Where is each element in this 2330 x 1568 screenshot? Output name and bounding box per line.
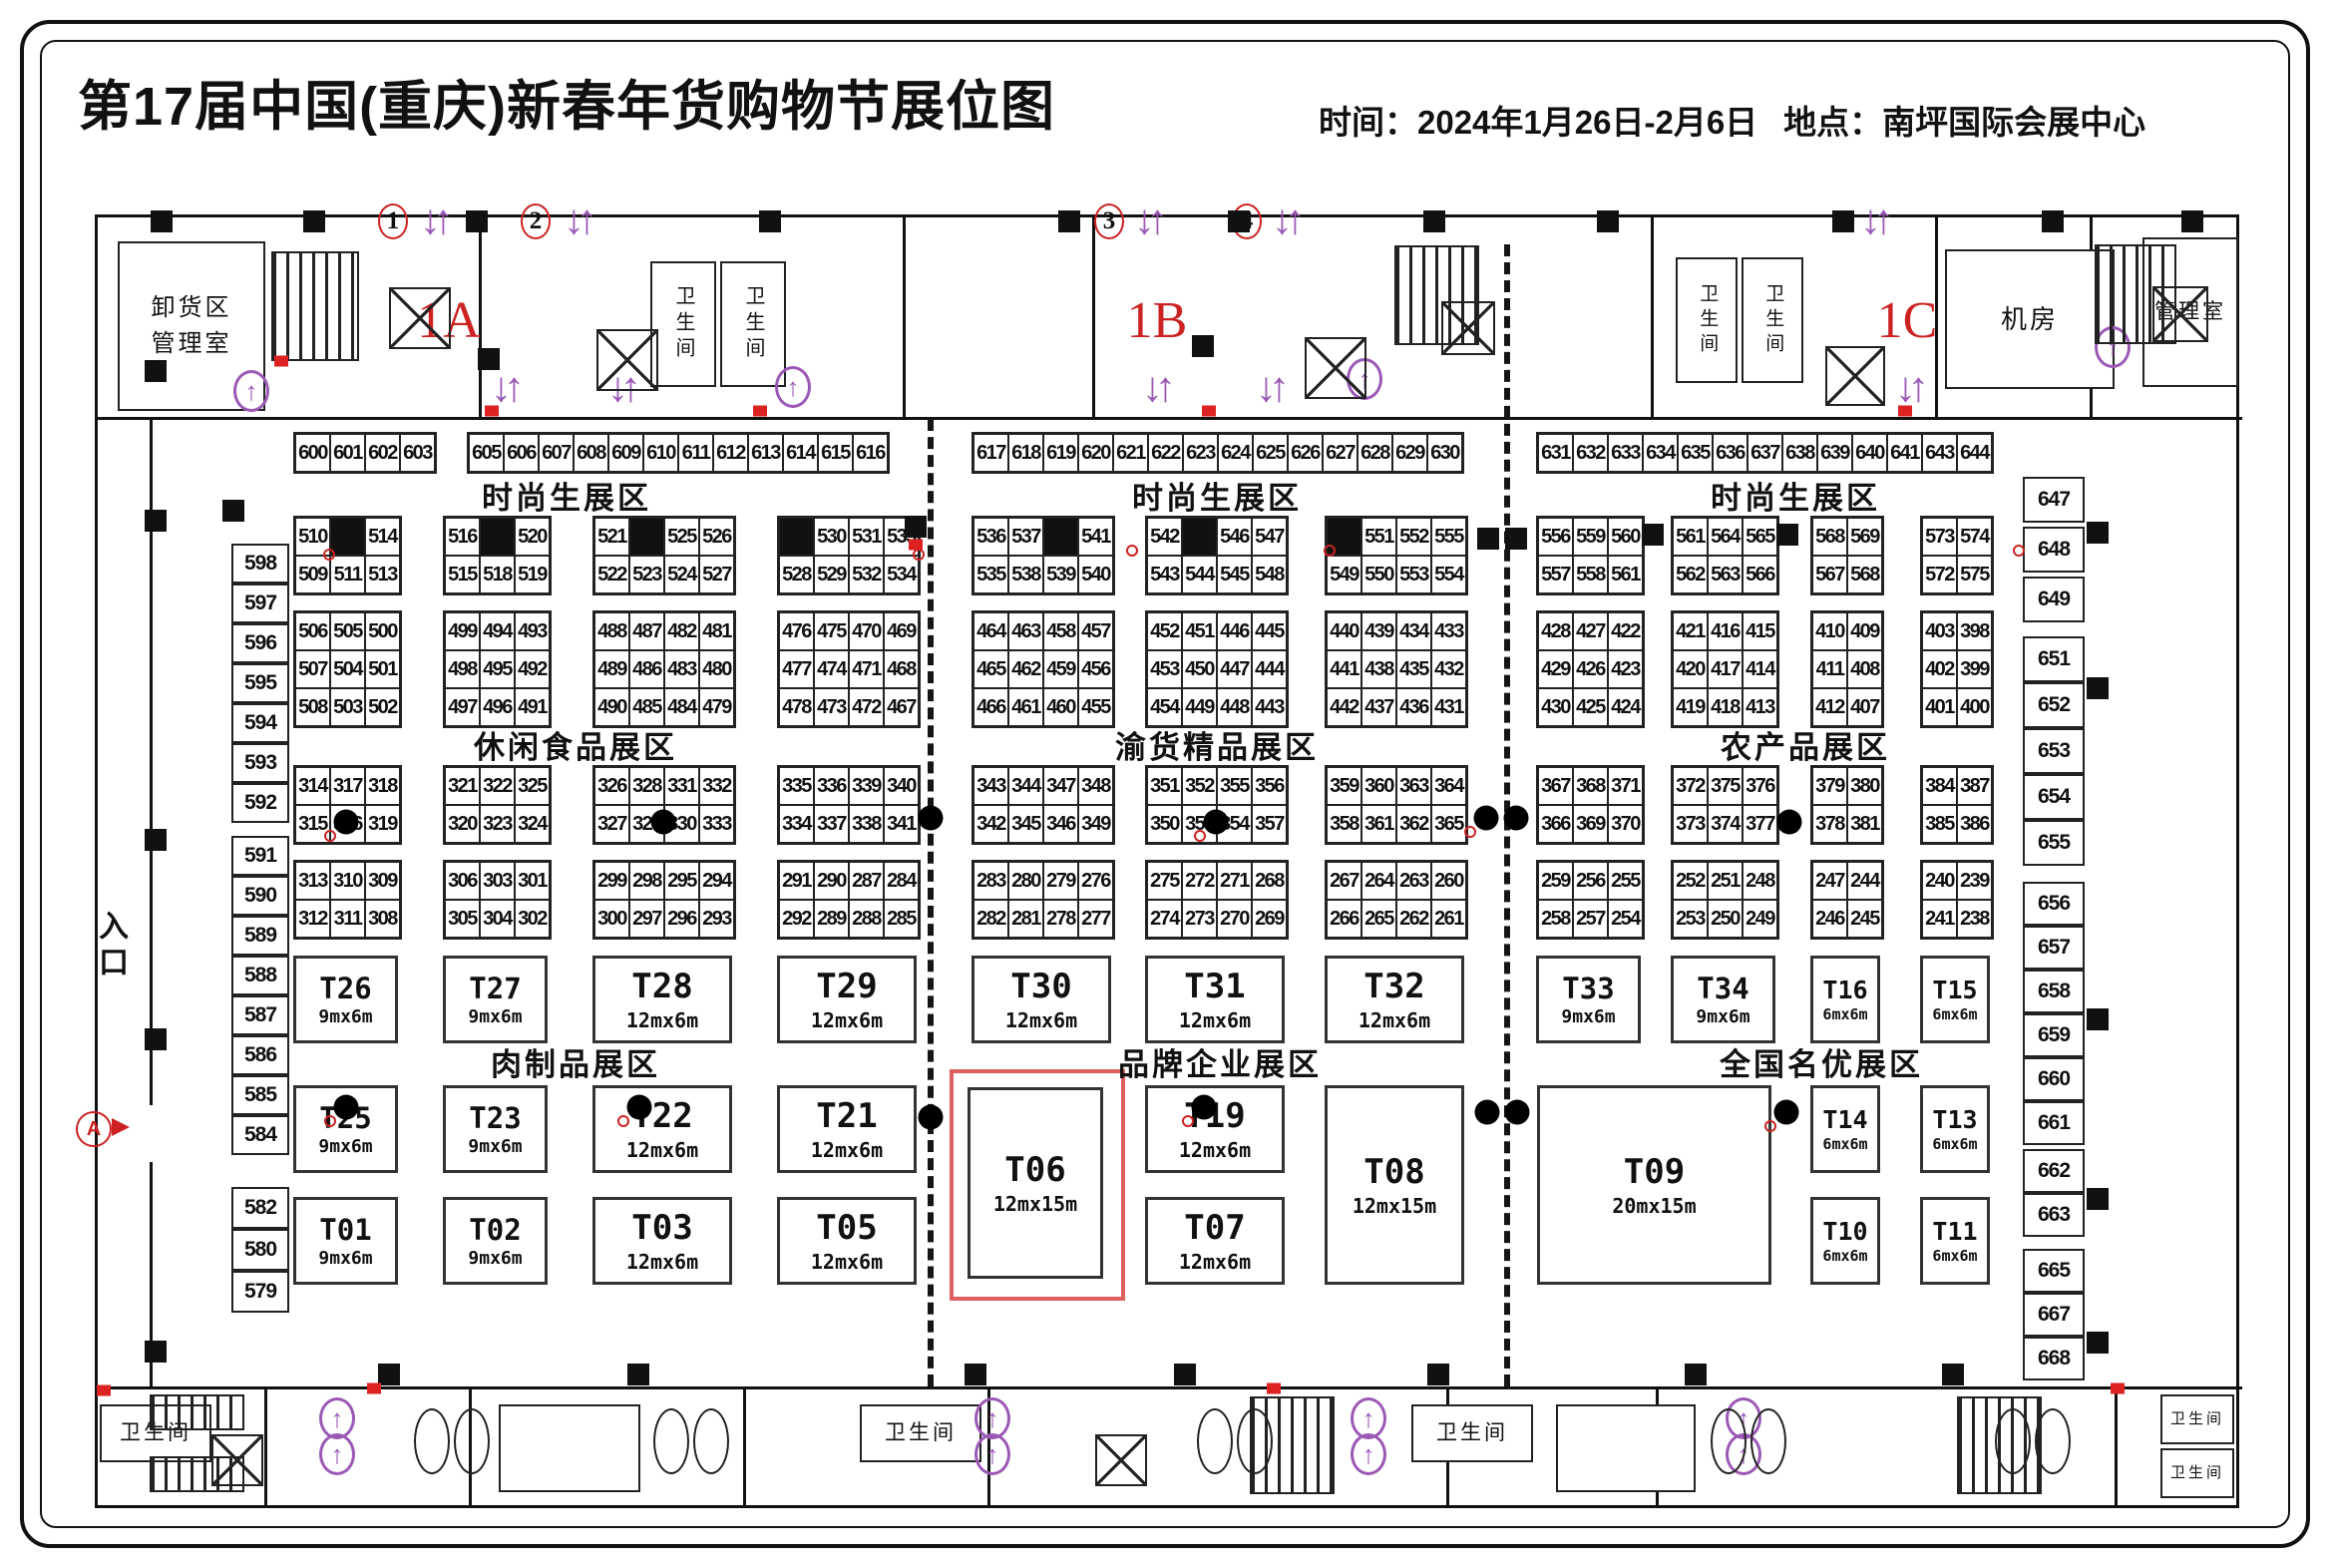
booth-cell: 361 xyxy=(1361,805,1396,843)
booth-cell: 274 xyxy=(1147,900,1182,938)
booth-cell: 449 xyxy=(1182,688,1217,726)
booth-cell: 364 xyxy=(1431,767,1466,805)
booth-cell: 366 xyxy=(1538,805,1573,843)
booth-group: 605606607608609610611612613614615616 xyxy=(467,432,890,474)
booth-cell: 261 xyxy=(1431,900,1466,938)
booth-cell: 621 xyxy=(1113,434,1148,472)
booth-cell: 333 xyxy=(699,805,734,843)
booth-cell: 547 xyxy=(1252,518,1287,556)
fire-equipment-icon xyxy=(1202,406,1216,417)
t-booth-text: T05 xyxy=(816,1207,877,1250)
booth-cell: 421 xyxy=(1673,612,1708,650)
booth-cell: 417 xyxy=(1708,650,1743,688)
booth-cell: 400 xyxy=(1957,688,1992,726)
pillar xyxy=(145,1028,167,1050)
booth-cell: 466 xyxy=(973,688,1008,726)
pillar xyxy=(145,1341,167,1363)
t-booth-T11: T116mx6m xyxy=(1920,1197,1990,1285)
t-booth-text: T13 xyxy=(1932,1104,1977,1135)
side-booth: 656 xyxy=(2023,882,2085,926)
booth-cell: 552 xyxy=(1396,518,1431,556)
booth-cell: 374 xyxy=(1708,805,1743,843)
booth-cell: 422 xyxy=(1608,612,1643,650)
booth-cell: 462 xyxy=(1008,650,1043,688)
elevator-icon xyxy=(389,287,451,349)
booth-cell: 493 xyxy=(515,612,550,650)
fire-equipment-icon xyxy=(1898,406,1912,417)
pillar xyxy=(145,360,167,382)
side-booth: 648 xyxy=(2023,527,2085,573)
side-booth: 658 xyxy=(2023,970,2085,1013)
booth-group: 306303301305304302 xyxy=(443,860,552,940)
booth-cell: 318 xyxy=(365,767,400,805)
t-booth-text: 12mx6m xyxy=(1179,1138,1251,1163)
booth-cell: 262 xyxy=(1396,900,1431,938)
fire-equipment-icon xyxy=(367,1383,381,1394)
t-booth-text: 12mx6m xyxy=(626,1008,698,1033)
booth-cell: 432 xyxy=(1431,650,1466,688)
booth-cell: 609 xyxy=(608,434,643,472)
booth-group: 403398402399401400 xyxy=(1920,610,1994,728)
booth-cell: 540 xyxy=(1078,556,1113,593)
booth-cell: 446 xyxy=(1217,612,1252,650)
booth-cell: 618 xyxy=(1008,434,1043,472)
booth-group: 631632633634635636637638639640641643644 xyxy=(1536,432,1994,474)
booth-cell: 342 xyxy=(973,805,1008,843)
booth-cell: 273 xyxy=(1182,900,1217,938)
booth-cell: 409 xyxy=(1847,612,1882,650)
booth-cell: 456 xyxy=(1078,650,1113,688)
booth-group: 259256255258257254 xyxy=(1536,860,1645,940)
t-booth-text: T31 xyxy=(1184,966,1245,1008)
t-booth-text: T21 xyxy=(816,1095,877,1138)
booth-cell: 325 xyxy=(515,767,550,805)
booth-cell: 625 xyxy=(1253,434,1288,472)
booth-cell: 372 xyxy=(1673,767,1708,805)
stairs-icon xyxy=(2095,244,2176,344)
side-booth: 591 xyxy=(231,836,289,876)
zone-label: 渝货精品展区 xyxy=(1115,722,1319,767)
booth-cell: 419 xyxy=(1673,688,1708,726)
booth-cell: 505 xyxy=(330,612,365,650)
side-booth: 668 xyxy=(2023,1337,2085,1380)
booth-cell: 522 xyxy=(594,556,629,593)
pillar xyxy=(151,210,173,232)
booth-cell: 440 xyxy=(1327,612,1361,650)
booth-cell: 619 xyxy=(1043,434,1078,472)
booth-group: 542546547543544545548 xyxy=(1145,516,1289,595)
booth-cell: 265 xyxy=(1361,900,1396,938)
t-booth-T34: T349mx6m xyxy=(1671,956,1775,1043)
pillar xyxy=(627,1364,649,1385)
booth-cell: 615 xyxy=(818,434,853,472)
t-booth-T30: T3012mx6m xyxy=(971,956,1111,1043)
up-arrow-icon: ↑ xyxy=(1351,1433,1386,1475)
booth-group: 530531533528529532534 xyxy=(777,516,921,595)
booth-cell: 398 xyxy=(1957,612,1992,650)
t-booth-T05: T0512mx6m xyxy=(777,1197,917,1285)
booth-cell: 344 xyxy=(1008,767,1043,805)
booth-cell: 248 xyxy=(1743,862,1777,900)
pillar xyxy=(303,210,325,232)
booth-cell: 332 xyxy=(699,767,734,805)
booth-cell: 314 xyxy=(295,767,330,805)
t-booth-text: 12mx6m xyxy=(811,1250,883,1275)
booth-cell: 348 xyxy=(1078,767,1113,805)
booth-cell: 298 xyxy=(629,862,664,900)
booth-cell: 569 xyxy=(1847,518,1882,556)
booth-group: 291290287284292289288285 xyxy=(777,860,921,940)
booth-cell: 612 xyxy=(713,434,748,472)
booth-cell: 380 xyxy=(1847,767,1882,805)
booth-group: 464463458457465462459456466461460455 xyxy=(971,610,1115,728)
booth-cell: 524 xyxy=(664,556,699,593)
pillar-cell xyxy=(1182,518,1217,556)
booth-cell: 482 xyxy=(664,612,699,650)
booth-cell: 426 xyxy=(1573,650,1608,688)
room-label: 机房 xyxy=(1945,249,2115,389)
booth-cell: 423 xyxy=(1608,650,1643,688)
booth-cell: 365 xyxy=(1431,805,1466,843)
wall xyxy=(903,214,906,419)
t-booth-T29: T2912mx6m xyxy=(777,956,917,1043)
t-booth-text: 6mx6m xyxy=(1822,1135,1867,1154)
booth-cell: 433 xyxy=(1431,612,1466,650)
booth-cell: 272 xyxy=(1182,862,1217,900)
booth-group: 536537541535538539540 xyxy=(971,516,1115,595)
booth-cell: 508 xyxy=(295,688,330,726)
booth-cell: 403 xyxy=(1922,612,1957,650)
side-booth: 580 xyxy=(231,1229,289,1271)
stairs-icon xyxy=(150,1394,244,1430)
gate-arrows-icon: ↓↑ xyxy=(1134,196,1160,243)
t-booth-text: 12mx6m xyxy=(1179,1008,1251,1033)
booth-cell: 418 xyxy=(1708,688,1743,726)
gate-arrows-icon: ↓↑ xyxy=(564,196,589,243)
booth-cell: 640 xyxy=(1852,434,1887,472)
booth-cell: 407 xyxy=(1847,688,1882,726)
booth-cell: 347 xyxy=(1043,767,1078,805)
booth-cell: 304 xyxy=(480,900,515,938)
up-arrow-icon: ↑ xyxy=(233,370,269,412)
booth-cell: 608 xyxy=(574,434,608,472)
booth-cell: 324 xyxy=(515,805,550,843)
t-booth-T13: T136mx6m xyxy=(1920,1085,1990,1173)
booth-cell: 428 xyxy=(1538,612,1573,650)
booth-cell: 317 xyxy=(330,767,365,805)
booth-cell: 331 xyxy=(664,767,699,805)
t-booth-text: T15 xyxy=(1932,975,1977,1005)
booth-cell: 349 xyxy=(1078,805,1113,843)
zone-label: 农产品展区 xyxy=(1721,722,1890,767)
booth-cell: 291 xyxy=(779,862,814,900)
t-booth-T06: T0612mx15m xyxy=(968,1087,1103,1279)
booth-cell: 469 xyxy=(884,612,919,650)
gate-number-icon: 2 xyxy=(521,203,551,239)
booth-cell: 279 xyxy=(1043,862,1078,900)
booth-cell: 548 xyxy=(1252,556,1287,593)
booth-cell: 424 xyxy=(1608,688,1643,726)
booth-group: 551552555549550553554 xyxy=(1325,516,1468,595)
booth-cell: 384 xyxy=(1922,767,1957,805)
booth-cell: 363 xyxy=(1396,767,1431,805)
booth-cell: 525 xyxy=(664,518,699,556)
booth-cell: 644 xyxy=(1957,434,1992,472)
zone-label: 肉制品展区 xyxy=(491,1039,660,1084)
booth-cell: 411 xyxy=(1812,650,1847,688)
booth-cell: 375 xyxy=(1708,767,1743,805)
t-booth-text: 9mx6m xyxy=(318,1006,372,1029)
booth-cell: 297 xyxy=(629,900,664,938)
stairs-icon xyxy=(271,251,359,361)
column-dot xyxy=(651,810,676,835)
t-booth-T27: T279mx6m xyxy=(443,956,548,1043)
booth-cell: 536 xyxy=(973,518,1008,556)
t-booth-text: 9mx6m xyxy=(1561,1006,1615,1029)
t-booth-text: T01 xyxy=(319,1212,371,1248)
t-booth-text: 20mx15m xyxy=(1612,1194,1696,1219)
booth-cell: 495 xyxy=(480,650,515,688)
column-dot xyxy=(1192,1095,1217,1120)
booth-cell: 542 xyxy=(1147,518,1182,556)
booth-cell: 603 xyxy=(400,434,435,472)
zone-label: 时尚生展区 xyxy=(1132,473,1302,518)
booth-cell: 530 xyxy=(814,518,849,556)
column-dot xyxy=(1774,1100,1799,1125)
booth-cell: 560 xyxy=(1608,518,1643,556)
wall xyxy=(1092,214,1095,419)
booth-cell: 634 xyxy=(1643,434,1678,472)
column-dot xyxy=(1777,810,1802,835)
booth-cell: 543 xyxy=(1147,556,1182,593)
t-booth-text: T08 xyxy=(1363,1151,1424,1194)
booth-cell: 628 xyxy=(1358,434,1392,472)
hydrant-ring-icon xyxy=(1126,545,1138,557)
stairs-icon xyxy=(1394,245,1479,345)
booth-cell: 546 xyxy=(1217,518,1252,556)
booth-cell: 607 xyxy=(539,434,574,472)
booth-cell: 429 xyxy=(1538,650,1573,688)
t-booth-T21: T2112mx6m xyxy=(777,1085,917,1173)
booth-cell: 308 xyxy=(365,900,400,938)
booth-cell: 490 xyxy=(594,688,629,726)
t-booth-text: 12mx6m xyxy=(811,1138,883,1163)
t-booth-text: T29 xyxy=(816,966,877,1008)
booth-group: 556559560557558561 xyxy=(1536,516,1645,595)
gate-arrows-icon: ↓↑ xyxy=(1256,363,1282,411)
pillar xyxy=(1477,528,1499,550)
side-booth: 588 xyxy=(231,956,289,995)
t-booth-text: T34 xyxy=(1697,971,1748,1006)
booth-cell: 549 xyxy=(1327,556,1361,593)
t-booth-T02: T029mx6m xyxy=(443,1197,548,1285)
booth-cell: 504 xyxy=(330,650,365,688)
booth-cell: 606 xyxy=(504,434,539,472)
pillar xyxy=(1427,1364,1449,1385)
door-icon xyxy=(1556,1404,1696,1492)
booth-cell: 340 xyxy=(884,767,919,805)
hall-divider-dashed xyxy=(928,419,934,1386)
booth-cell: 442 xyxy=(1327,688,1361,726)
booth-cell: 309 xyxy=(365,862,400,900)
booth-cell: 326 xyxy=(594,767,629,805)
booth-cell: 437 xyxy=(1361,688,1396,726)
booth-cell: 561 xyxy=(1608,556,1643,593)
pillar-cell xyxy=(629,518,664,556)
booth-cell: 293 xyxy=(699,900,734,938)
booth-group: 359360363364358361362365 xyxy=(1325,765,1468,845)
hydrant-ring-icon xyxy=(1764,1120,1776,1132)
booth-cell: 294 xyxy=(699,862,734,900)
booth-cell: 503 xyxy=(330,688,365,726)
wall xyxy=(2115,1388,2118,1508)
booth-cell: 477 xyxy=(779,650,814,688)
pillar xyxy=(378,1364,400,1385)
t-booth-text: T09 xyxy=(1624,1151,1685,1194)
booth-cell: 322 xyxy=(480,767,515,805)
side-booth: 587 xyxy=(231,995,289,1035)
booth-cell: 513 xyxy=(365,556,400,593)
booth-cell: 534 xyxy=(884,556,919,593)
booth-cell: 337 xyxy=(814,805,849,843)
booth-cell: 556 xyxy=(1538,518,1573,556)
booth-group: 488487482481489486483480490485484479 xyxy=(592,610,736,728)
hydrant-ring-icon xyxy=(1464,826,1476,838)
booth-group: 573574572575 xyxy=(1920,516,1994,595)
side-booth: 593 xyxy=(231,743,289,783)
booth-cell: 558 xyxy=(1573,556,1608,593)
pillar xyxy=(905,516,927,538)
booth-cell: 610 xyxy=(643,434,678,472)
room-label: 卫生间 xyxy=(650,261,716,387)
revolving-door-icon xyxy=(1197,1408,1277,1474)
booth-cell: 285 xyxy=(884,900,919,938)
elevator-icon xyxy=(1825,346,1885,406)
booth-cell: 574 xyxy=(1957,518,1992,556)
booth-cell: 498 xyxy=(445,650,480,688)
booth-cell: 328 xyxy=(629,767,664,805)
booth-group: 283280279276282281278277 xyxy=(971,860,1115,940)
t-booth-text: T02 xyxy=(469,1212,521,1248)
booth-group: 410409411408412407 xyxy=(1810,610,1884,728)
t-booth-text: 12mx15m xyxy=(993,1192,1077,1217)
booth-cell: 282 xyxy=(973,900,1008,938)
booth-cell: 436 xyxy=(1396,688,1431,726)
booth-cell: 345 xyxy=(1008,805,1043,843)
booth-cell: 431 xyxy=(1431,688,1466,726)
booth-cell: 410 xyxy=(1812,612,1847,650)
t-booth-text: 12mx6m xyxy=(811,1008,883,1033)
elevator-icon xyxy=(1095,1434,1147,1486)
pillar xyxy=(1505,528,1527,550)
column-dot xyxy=(1474,806,1499,831)
booth-cell: 245 xyxy=(1847,900,1882,938)
zone-label: 全国名优展区 xyxy=(1720,1039,1923,1084)
booth-group: 299298295294300297296293 xyxy=(592,860,736,940)
pillar xyxy=(965,1364,986,1385)
booth-cell: 252 xyxy=(1673,862,1708,900)
t-booth-text: 9mx6m xyxy=(318,1248,372,1271)
booth-cell: 514 xyxy=(365,518,400,556)
booth-cell: 502 xyxy=(365,688,400,726)
booth-cell: 484 xyxy=(664,688,699,726)
t-booth-text: 6mx6m xyxy=(1822,1247,1867,1266)
booth-cell: 481 xyxy=(699,612,734,650)
booth-cell: 355 xyxy=(1217,767,1252,805)
hydrant-ring-icon xyxy=(323,549,335,561)
booth-cell: 378 xyxy=(1812,805,1847,843)
booth-cell: 537 xyxy=(1008,518,1043,556)
booth-cell: 602 xyxy=(365,434,400,472)
t-booth-text: 12mx6m xyxy=(626,1138,698,1163)
gate-arrows-icon: ↓↑ xyxy=(1860,196,1886,243)
booth-group: 428427422429426423430425424 xyxy=(1536,610,1645,728)
booth-group: 521525526522523524527 xyxy=(592,516,736,595)
booth-cell: 554 xyxy=(1431,556,1466,593)
booth-group: 510514509511513 xyxy=(293,516,402,595)
pillar xyxy=(1776,524,1798,546)
booth-cell: 443 xyxy=(1252,688,1287,726)
column-dot xyxy=(334,810,359,835)
booth-cell: 629 xyxy=(1392,434,1427,472)
booth-cell: 244 xyxy=(1847,862,1882,900)
booth-cell: 453 xyxy=(1147,650,1182,688)
booth-cell: 425 xyxy=(1573,688,1608,726)
booth-cell: 379 xyxy=(1812,767,1847,805)
booth-cell: 641 xyxy=(1887,434,1922,472)
booth-cell: 562 xyxy=(1673,556,1708,593)
booth-cell: 373 xyxy=(1673,805,1708,843)
booth-cell: 280 xyxy=(1008,862,1043,900)
wall xyxy=(1651,214,1654,419)
booth-group: 6176186196206216226236246256266276286296… xyxy=(971,432,1464,474)
fire-equipment-icon xyxy=(274,356,288,367)
booth-group: 252251248253250249 xyxy=(1671,860,1779,940)
pillar xyxy=(2087,1332,2109,1354)
booth-cell: 473 xyxy=(814,688,849,726)
booth-group: 372375376373374377 xyxy=(1671,765,1779,845)
booth-cell: 573 xyxy=(1922,518,1957,556)
booth-cell: 241 xyxy=(1922,900,1957,938)
booth-cell: 515 xyxy=(445,556,480,593)
booth-cell: 479 xyxy=(699,688,734,726)
t-booth-T16: T166mx6m xyxy=(1810,956,1880,1043)
booth-cell: 275 xyxy=(1147,862,1182,900)
booth-cell: 435 xyxy=(1396,650,1431,688)
booth-cell: 455 xyxy=(1078,688,1113,726)
booth-group: 275272271268274273270269 xyxy=(1145,860,1289,940)
t-booth-T10: T106mx6m xyxy=(1810,1197,1880,1285)
booth-cell: 402 xyxy=(1922,650,1957,688)
booth-cell: 639 xyxy=(1817,434,1852,472)
booth-cell: 631 xyxy=(1538,434,1573,472)
fire-equipment-icon xyxy=(1267,1383,1281,1394)
marker-a-icon: A xyxy=(76,1111,112,1147)
booth-cell: 460 xyxy=(1043,688,1078,726)
booth-cell: 605 xyxy=(469,434,504,472)
booth-cell: 565 xyxy=(1743,518,1777,556)
booth-cell: 527 xyxy=(699,556,734,593)
booth-cell: 240 xyxy=(1922,862,1957,900)
booth-cell: 268 xyxy=(1252,862,1287,900)
t-booth-text: 6mx6m xyxy=(1932,1005,1977,1024)
booth-group: 240239241238 xyxy=(1920,860,1994,940)
wall xyxy=(264,1388,267,1508)
t-booth-text: 12mx15m xyxy=(1353,1194,1436,1219)
booth-cell: 299 xyxy=(594,862,629,900)
booth-cell: 567 xyxy=(1812,556,1847,593)
t-booth-text: T03 xyxy=(631,1207,692,1250)
